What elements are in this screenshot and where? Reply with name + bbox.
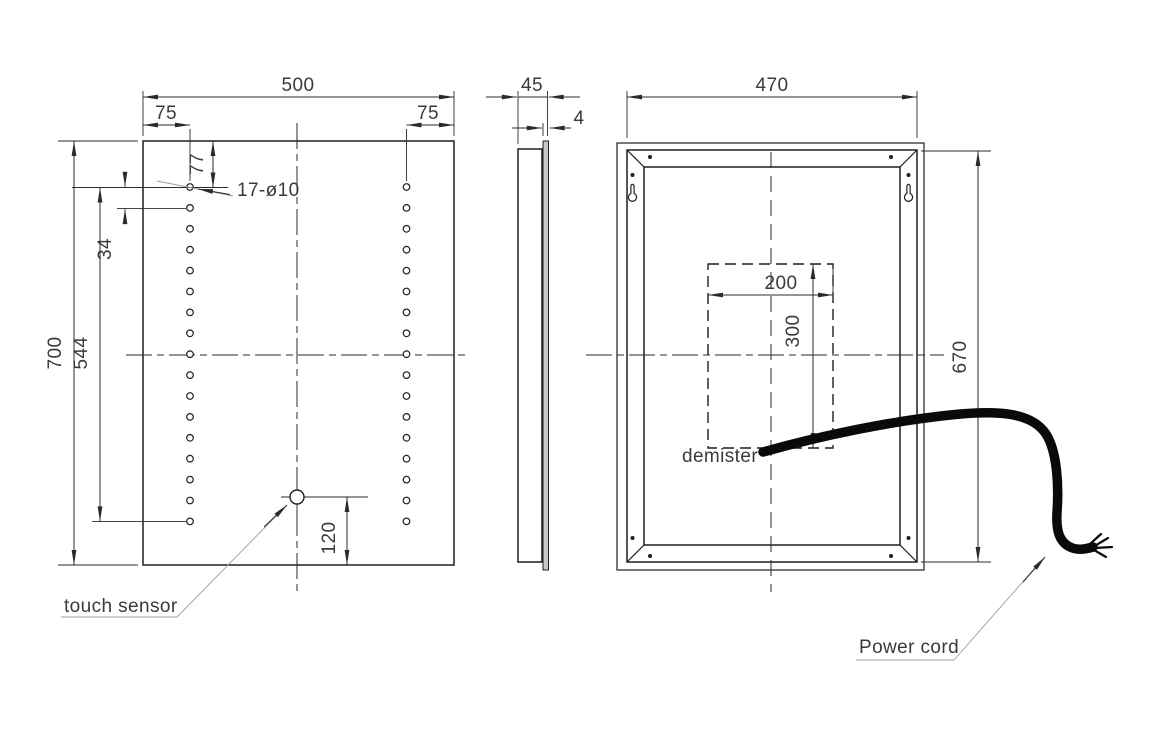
mounting-hole <box>187 476 194 483</box>
dim-back-width-value: 470 <box>756 75 789 96</box>
dim-front-height-value: 700 <box>45 337 66 370</box>
mounting-hole <box>187 435 194 442</box>
dim-hole-inset-right-value: 75 <box>417 103 439 124</box>
back-view: 200 300 470 670 demister <box>586 75 1112 660</box>
mounting-hole <box>403 246 410 253</box>
mounting-hole <box>403 414 410 421</box>
dim-back-width: 470 <box>627 75 917 138</box>
mounting-hole <box>187 372 194 379</box>
dim-front-width: 500 <box>143 75 454 136</box>
dim-depth: 45 <box>486 75 580 144</box>
dim-demister-width-value: 200 <box>765 273 798 294</box>
power-cord-label: Power cord <box>859 637 959 658</box>
side-body-outline <box>518 149 542 562</box>
mounting-hole <box>403 267 410 274</box>
dim-glass-thickness-value: 4 <box>574 108 585 129</box>
demister-label: demister <box>682 446 758 467</box>
dim-depth-value: 45 <box>521 75 543 96</box>
mounting-hole <box>187 351 194 358</box>
front-view: 500 75 75 77 34 54 <box>45 75 470 617</box>
dim-first-hole-offset-value: 77 <box>187 153 208 175</box>
mounting-hole <box>403 184 410 191</box>
mounting-hole <box>187 330 194 337</box>
mounting-hole <box>403 476 410 483</box>
mounting-hole <box>403 330 410 337</box>
dim-hole-pitch-value: 34 <box>95 238 116 260</box>
mounting-hole <box>403 393 410 400</box>
mounting-hole <box>403 497 410 504</box>
mounting-hole <box>403 288 410 295</box>
dim-glass-thickness: 4 <box>512 108 585 136</box>
mirror-engineering-drawing: 500 75 75 77 34 54 <box>0 0 1156 742</box>
mounting-hole <box>403 518 410 525</box>
side-glass-pane <box>543 141 549 570</box>
mounting-hole <box>403 205 410 212</box>
dim-demister-height-value: 300 <box>783 315 804 348</box>
mounting-hole <box>187 226 194 233</box>
mounting-hole <box>403 455 410 462</box>
touch-sensor-label: touch sensor <box>64 596 178 617</box>
mounting-hole <box>403 351 410 358</box>
mounting-hole <box>187 246 194 253</box>
power-cord-callout: Power cord <box>856 557 1045 660</box>
dim-back-height-value: 670 <box>950 341 971 374</box>
mounting-hole <box>187 288 194 295</box>
mounting-hole <box>187 309 194 316</box>
mounting-hole <box>187 205 194 212</box>
technical-drawing-canvas: 500 75 75 77 34 54 <box>0 0 1156 742</box>
holes-callout-label: 17-ø10 <box>237 180 300 201</box>
dim-hole-inset-left-value: 75 <box>155 103 177 124</box>
mounting-hole <box>187 455 194 462</box>
dim-back-height: 670 <box>921 151 991 562</box>
mounting-hole <box>187 518 194 525</box>
mounting-hole <box>403 435 410 442</box>
mounting-hole <box>403 226 410 233</box>
side-view: 45 4 <box>486 75 585 570</box>
mounting-hole <box>403 309 410 316</box>
dim-front-width-value: 500 <box>282 75 315 96</box>
mounting-hole <box>403 372 410 379</box>
mounting-hole <box>187 267 194 274</box>
mounting-hole <box>187 497 194 504</box>
back-frame-inner <box>644 167 900 545</box>
mounting-hole <box>187 414 194 421</box>
dim-sensor-offset-bottom-value: 120 <box>319 522 340 555</box>
mounting-hole <box>187 393 194 400</box>
